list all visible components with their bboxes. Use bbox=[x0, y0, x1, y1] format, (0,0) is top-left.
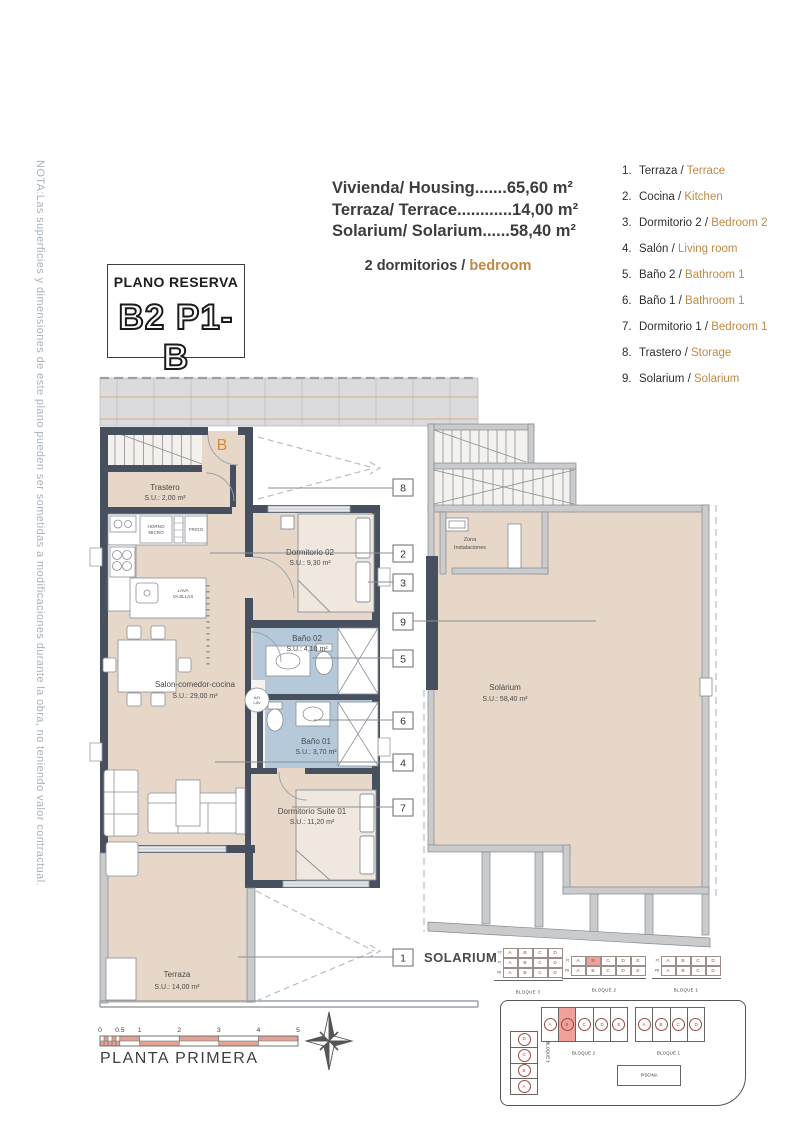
callout-5: 5 bbox=[400, 654, 406, 666]
site-unit-highlighted: B bbox=[559, 1008, 576, 1041]
bloque2-caption: BLOQUE 2 bbox=[562, 978, 646, 997]
legend-num: 5. bbox=[622, 262, 639, 288]
row-label: PB bbox=[562, 966, 571, 976]
unit-cell: C bbox=[601, 966, 616, 976]
bedrooms-es: 2 dormitorios / bbox=[365, 258, 466, 274]
row-label: P1 bbox=[494, 958, 503, 968]
solarium-table-bloque2: P1 ABCDE PB ABCDE BLOQUE 2 bbox=[562, 956, 646, 997]
scale-tick-5: 5 bbox=[296, 1027, 300, 1034]
legend-num: 8. bbox=[622, 340, 639, 366]
legend-en: Bedroom 1 bbox=[711, 321, 767, 333]
site-unit: C bbox=[576, 1008, 593, 1041]
suite-label: Dormitorio Suite 01 bbox=[278, 807, 347, 816]
unit-cell: D bbox=[548, 968, 563, 978]
legend-en: Living room bbox=[678, 243, 737, 255]
legend-es: Solarium / bbox=[639, 373, 691, 385]
legend-en: Bathroom 1 bbox=[685, 295, 744, 307]
site-unit: B bbox=[511, 1064, 537, 1080]
solarium-tables-title: SOLARIUM bbox=[424, 950, 497, 965]
terraza-label: Terraza bbox=[164, 970, 191, 979]
site-unit: D bbox=[688, 1008, 704, 1041]
unit-cell: D bbox=[548, 958, 563, 968]
legend-es: Terraza / bbox=[639, 165, 684, 177]
lava-label-2: VAJILLAS bbox=[173, 594, 194, 599]
unit-cell: A bbox=[571, 956, 586, 966]
party-wall-dark bbox=[426, 556, 438, 690]
unit-cell: C bbox=[533, 948, 548, 958]
unit-cell: D bbox=[616, 956, 631, 966]
unit-cell: B bbox=[518, 948, 533, 958]
terraza-area: S.U.: 14,00 m² bbox=[154, 984, 200, 991]
site-unit: E bbox=[611, 1008, 627, 1041]
unit-cell: B bbox=[586, 966, 601, 976]
salon-area: S.U.: 29,00 m² bbox=[172, 693, 218, 700]
legend-item-dormitorio1: 7.Dormitorio 1 / Bedroom 1 bbox=[622, 314, 768, 340]
legend-num: 4. bbox=[622, 236, 639, 262]
room-legend: 1.Terraza / Terrace 2.Cocina / Kitchen 3… bbox=[622, 158, 768, 392]
legend-item-cocina: 2.Cocina / Kitchen bbox=[622, 184, 768, 210]
legend-en: Bathroom 1 bbox=[685, 269, 744, 281]
surface-line-vivienda: Vivienda/ Housing.......65,60 m² bbox=[332, 178, 564, 200]
bed-suite bbox=[296, 790, 376, 880]
unit-cell: C bbox=[533, 958, 548, 968]
legend-es: Dormitorio 2 / bbox=[639, 217, 708, 229]
surface-line-terraza: Terraza/ Terrace............14,00 m² bbox=[332, 200, 564, 222]
dorm2-label: Dormitorio 02 bbox=[286, 548, 335, 557]
legend-num: 7. bbox=[622, 314, 639, 340]
site-piscina: PISCINA bbox=[617, 1065, 681, 1086]
legend-es: Baño 2 / bbox=[639, 269, 682, 281]
bedrooms-line: 2 dormitorios / bedroom bbox=[332, 258, 564, 274]
compass-rose-icon bbox=[306, 1012, 352, 1070]
plan-title-label: PLANO RESERVA bbox=[108, 274, 244, 290]
plan-unit-code: B2 P1-B bbox=[108, 298, 244, 378]
unit-cell: A bbox=[503, 958, 518, 968]
disclaimer-note: NOTA:Las superficies y dimensiones de es… bbox=[34, 160, 46, 960]
solarium-table-bloque1: P1 ABCD PB ABCD BLOQUE 1 bbox=[652, 956, 721, 997]
legend-item-trastero: 8.Trastero / Storage bbox=[622, 340, 768, 366]
site-key-plan: A B C D E BLOQUE 2 A B C D BLOQUE 1 D C … bbox=[500, 1000, 746, 1106]
unit-cell: C bbox=[601, 956, 616, 966]
legend-num: 1. bbox=[622, 158, 639, 184]
site-bloque1-caption: BLOQUE 1 bbox=[635, 1042, 703, 1060]
unit-cell: B bbox=[676, 966, 691, 976]
callout-8: 8 bbox=[400, 483, 406, 495]
unit-cell: C bbox=[691, 956, 706, 966]
unit-cell: D bbox=[706, 956, 721, 966]
horno-label-1: HORNO bbox=[147, 524, 165, 529]
site-unit: A bbox=[511, 1079, 537, 1094]
zona-label-2: Instalaciones bbox=[454, 545, 486, 551]
legend-item-salon: 4.Salón / Living room bbox=[622, 236, 768, 262]
legend-item-dormitorio2: 3.Dormitorio 2 / Bedroom 2 bbox=[622, 210, 768, 236]
unit-cell-highlighted: B bbox=[586, 956, 601, 966]
scale-tick-3: 3 bbox=[217, 1027, 221, 1034]
site-bloque3-caption: BLOQUE 3 bbox=[538, 1037, 556, 1089]
solarium-floor-plan bbox=[424, 424, 716, 947]
bedrooms-en: bedroom bbox=[469, 258, 531, 274]
callout-4: 4 bbox=[400, 758, 406, 770]
surface-line-solarium: Solarium/ Solarium......58,40 m² bbox=[332, 221, 564, 243]
legend-num: 3. bbox=[622, 210, 639, 236]
callout-boxes: 8 2 3 9 5 6 4 7 1 bbox=[393, 479, 413, 966]
legend-en: Terrace bbox=[687, 165, 725, 177]
scale-tick-05: 0.5 bbox=[115, 1027, 125, 1034]
site-bloque3: D C B A bbox=[510, 1031, 538, 1095]
unit-cell: A bbox=[571, 966, 586, 976]
scale-tick-4: 4 bbox=[257, 1027, 261, 1034]
legend-en: Kitchen bbox=[684, 191, 722, 203]
legend-num: 9. bbox=[622, 366, 639, 392]
legend-item-solarium: 9.Solarium / Solarium bbox=[622, 366, 768, 392]
row-label: P1 bbox=[562, 956, 571, 966]
site-bloque1: A B C D bbox=[635, 1007, 705, 1042]
callout-9: 9 bbox=[400, 617, 406, 629]
legend-en: Solarium bbox=[694, 373, 739, 385]
unit-cell: E bbox=[631, 956, 646, 966]
unit-cell: A bbox=[503, 968, 518, 978]
plan-title-box: PLANO RESERVA B2 P1-B bbox=[107, 264, 245, 358]
unit-cell: B bbox=[518, 958, 533, 968]
legend-es: Trastero / bbox=[639, 347, 688, 359]
trastero-area: S.U.: 2,00 m² bbox=[144, 495, 186, 502]
adlav-label-2: LAV bbox=[253, 700, 261, 705]
legend-es: Baño 1 / bbox=[639, 295, 682, 307]
solarium-area: S.U.: 58,40 m² bbox=[482, 696, 528, 703]
legend-en: Storage bbox=[691, 347, 731, 359]
bano2-area: S.U.: 4,10 m² bbox=[286, 646, 328, 653]
site-unit: D bbox=[594, 1008, 611, 1041]
bano1-area: S.U.: 3,70 m² bbox=[295, 749, 337, 756]
site-unit: C bbox=[511, 1048, 537, 1064]
scale-tick-2: 2 bbox=[177, 1027, 181, 1034]
bano2-label: Baño 02 bbox=[292, 634, 322, 643]
solarium-table-bloque3: P2 ABCD P1 ABCD PB ABCD BLOQUE 3 bbox=[494, 948, 563, 999]
unit-letter: B bbox=[217, 437, 228, 454]
unit-cell: B bbox=[676, 956, 691, 966]
lava-label-1: LAVA bbox=[177, 588, 189, 593]
suite-area: S.U.: 11,20 m² bbox=[290, 819, 335, 826]
unit-cell: C bbox=[691, 966, 706, 976]
unit-cell: D bbox=[706, 966, 721, 976]
surface-summary: Vivienda/ Housing.......65,60 m² Terraza… bbox=[332, 178, 564, 243]
site-unit: C bbox=[671, 1008, 688, 1041]
scale-bar: 0 0.5 1 2 3 4 5 bbox=[98, 1027, 300, 1046]
salon-label: Salon-comedor-cocina bbox=[155, 680, 236, 689]
callout-6: 6 bbox=[400, 716, 406, 728]
bano1-label: Baño 01 bbox=[301, 737, 331, 746]
unit-cell: A bbox=[661, 966, 676, 976]
legend-en: Bedroom 2 bbox=[711, 217, 767, 229]
unit-cell: D bbox=[548, 948, 563, 958]
scale-tick-1: 1 bbox=[138, 1027, 142, 1034]
legend-num: 2. bbox=[622, 184, 639, 210]
bloque1-caption: BLOQUE 1 bbox=[652, 978, 721, 997]
callout-1: 1 bbox=[400, 953, 406, 965]
unit-cell: E bbox=[631, 966, 646, 976]
frigo-label: FRIGO bbox=[189, 527, 204, 532]
unit-cell: A bbox=[503, 948, 518, 958]
site-unit: A bbox=[636, 1008, 653, 1041]
floor-plan-sheet: { "note": "NOTA:Las superficies y dimens… bbox=[0, 0, 800, 1133]
legend-item-bano2: 5.Baño 2 / Bathroom 1 bbox=[622, 262, 768, 288]
trastero-label: Trastero bbox=[150, 483, 180, 492]
left-floor-plan bbox=[90, 427, 478, 1007]
unit-cell: A bbox=[661, 956, 676, 966]
dorm2-area: S.U.: 9,30 m² bbox=[289, 560, 331, 567]
row-label: PB bbox=[494, 968, 503, 978]
legend-item-bano1: 6.Baño 1 / Bathroom 1 bbox=[622, 288, 768, 314]
unit-cell: D bbox=[616, 966, 631, 976]
callout-7: 7 bbox=[400, 803, 406, 815]
legend-es: Dormitorio 1 / bbox=[639, 321, 708, 333]
row-label: PB bbox=[652, 966, 661, 976]
legend-num: 6. bbox=[622, 288, 639, 314]
legend-item-terraza: 1.Terraza / Terrace bbox=[622, 158, 768, 184]
scale-tick-0: 0 bbox=[98, 1027, 102, 1034]
legend-es: Salón / bbox=[639, 243, 675, 255]
zona-label-1: Zona bbox=[464, 537, 477, 543]
legend-es: Cocina / bbox=[639, 191, 681, 203]
unit-cell: C bbox=[533, 968, 548, 978]
site-unit: D bbox=[511, 1032, 537, 1048]
bloque3-caption: BLOQUE 3 bbox=[494, 980, 563, 999]
unit-cell: B bbox=[518, 968, 533, 978]
callout-3: 3 bbox=[400, 578, 406, 590]
neighbour-terrace-band bbox=[100, 378, 478, 426]
site-unit: B bbox=[653, 1008, 670, 1041]
horno-label-2: MICRO bbox=[148, 530, 164, 535]
row-label: P2 bbox=[494, 948, 503, 958]
row-label: P1 bbox=[652, 956, 661, 966]
plan-level-title: PLANTA PRIMERA bbox=[100, 1050, 259, 1068]
callout-2: 2 bbox=[400, 549, 406, 561]
solarium-label: Solárium bbox=[489, 683, 521, 692]
